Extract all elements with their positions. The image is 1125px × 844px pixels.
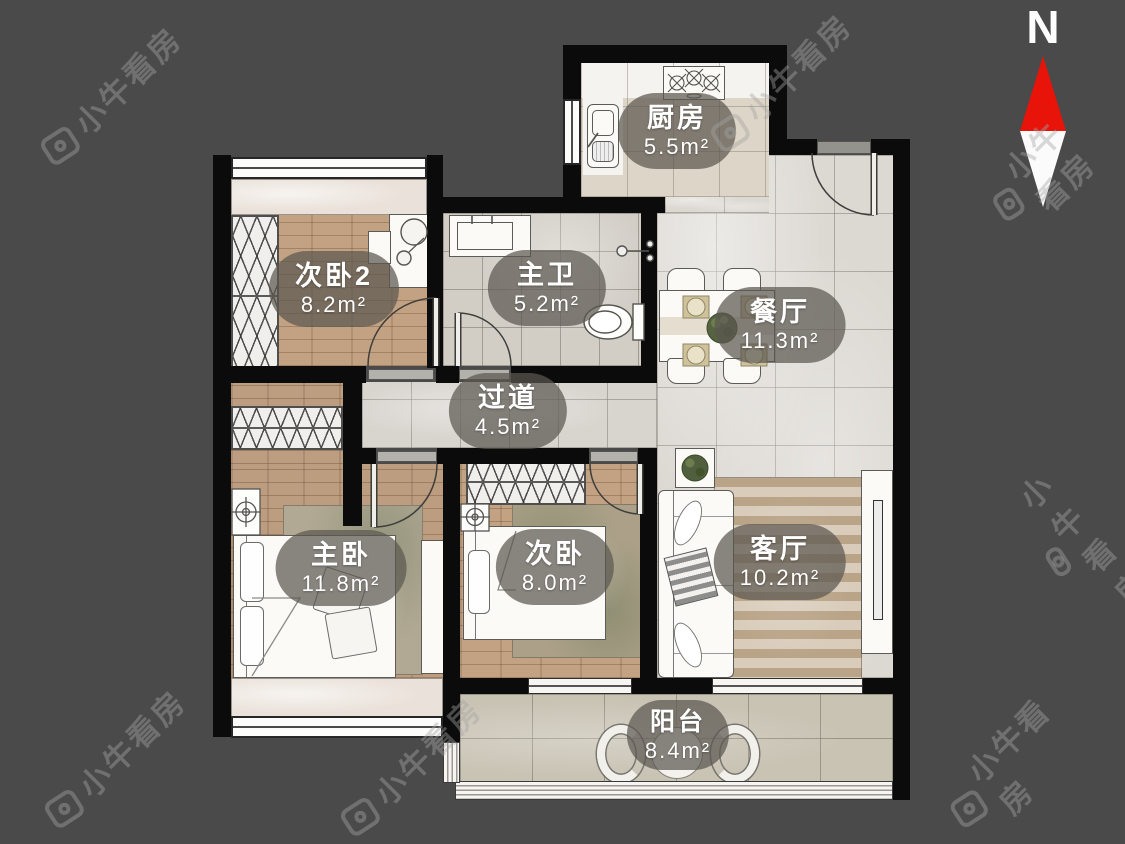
room-area: 8.2m²	[295, 292, 373, 318]
room-name: 阳台	[645, 706, 711, 738]
watermark: 小牛看房	[36, 678, 194, 836]
pillow	[240, 606, 264, 666]
door-threshold	[368, 369, 434, 380]
wall	[443, 464, 460, 678]
compass-north-label: N	[1017, 0, 1069, 54]
wall	[457, 678, 528, 694]
wall	[435, 197, 665, 213]
room-name: 餐厅	[741, 296, 820, 328]
watermark-text: 小牛看房	[955, 670, 1108, 823]
watermark-lens-icon	[52, 137, 69, 154]
room-area: 8.0m²	[522, 570, 588, 596]
bedroom2-window	[231, 157, 427, 179]
bedroom-wardrobe	[466, 459, 586, 505]
wall	[640, 456, 657, 678]
room-label-balcony: 阳台 8.4m²	[627, 700, 729, 770]
sofa-pillow	[668, 619, 708, 672]
watermark: 小牛看房	[926, 670, 1108, 844]
watermark-logo-icon	[1043, 544, 1074, 579]
room-area: 4.5m²	[475, 414, 541, 440]
compass-south-arrow-icon	[1020, 131, 1066, 207]
room-name: 次卧2	[295, 260, 373, 292]
watermark-lens-icon	[1050, 553, 1067, 570]
wall	[563, 45, 787, 63]
balcony-railing	[455, 781, 893, 800]
watermark-text: 小牛看房	[1007, 450, 1125, 613]
wall	[427, 213, 443, 368]
room-label-hallway: 过道 4.5m²	[449, 373, 567, 449]
bedroom2-window-sill	[231, 179, 427, 215]
master-window-sill	[231, 678, 443, 718]
room-label-dining: 餐厅 11.3m²	[715, 287, 846, 363]
tv	[873, 500, 883, 620]
wall	[436, 366, 459, 383]
wall	[427, 155, 443, 213]
bath-sink-basin	[457, 222, 513, 250]
floor-plan: 厨房 5.5m² 次卧2 8.2m² 主卫 5.2m² 餐厅 11.3m² 过道…	[0, 0, 1125, 844]
wall	[213, 155, 231, 737]
watermark-lens-icon	[1001, 196, 1018, 213]
room-area: 10.2m²	[740, 565, 820, 591]
room-area: 11.8m²	[302, 571, 381, 597]
watermark-lens-icon	[56, 800, 73, 817]
kitchen-window	[563, 99, 581, 165]
kitchen-drainer	[592, 141, 614, 162]
room-name: 次卧	[522, 538, 588, 570]
watermark-logo-icon	[42, 787, 87, 831]
room-name: 主卫	[514, 259, 580, 291]
room-name: 过道	[475, 382, 541, 414]
door-threshold	[377, 451, 437, 462]
master-wardrobe	[231, 406, 343, 450]
wall	[343, 448, 376, 464]
watermark-logo-icon	[948, 787, 991, 830]
room-area: 5.2m²	[514, 291, 580, 317]
room-label-bedroom2: 次卧2 8.2m²	[269, 251, 399, 327]
room-area: 5.5m²	[644, 134, 710, 160]
wall	[641, 213, 657, 383]
wall	[437, 448, 589, 464]
watermark-logo-icon	[338, 795, 383, 839]
room-name: 厨房	[644, 102, 710, 134]
watermark: 小牛看房	[988, 450, 1125, 632]
room-name: 主卧	[302, 539, 381, 571]
sofa-pillow	[668, 497, 708, 550]
balcony-sliding-door[interactable]	[712, 678, 863, 694]
wall	[343, 382, 362, 448]
room-label-kitchen: 厨房 5.5m²	[618, 93, 736, 169]
watermark-lens-icon	[961, 800, 978, 817]
watermark-text: 小牛看房	[62, 15, 190, 143]
throw-pillow	[324, 606, 377, 659]
kitchen-pass-floor	[665, 197, 769, 213]
room-label-bedroom: 次卧 8.0m²	[496, 529, 614, 605]
master-window	[231, 716, 443, 738]
compass: N	[1017, 0, 1069, 207]
plant-stand	[675, 448, 715, 488]
wall	[893, 139, 910, 800]
dining-chair	[667, 358, 705, 384]
compass-north-arrow-icon	[1020, 56, 1066, 131]
watermark-logo-icon	[38, 124, 83, 168]
wall	[563, 45, 581, 99]
room-label-master-bedroom: 主卧 11.8m²	[276, 530, 407, 606]
wall	[443, 678, 460, 742]
room-label-master-bath: 主卫 5.2m²	[488, 250, 606, 326]
kitchen-sink-basin	[592, 110, 614, 136]
wall	[632, 678, 712, 694]
wall	[213, 366, 366, 383]
balcony-railing-left	[443, 742, 460, 783]
room-label-living: 客厅 10.2m²	[714, 524, 846, 600]
wall	[343, 464, 362, 526]
watermark-text: 小牛看房	[66, 678, 194, 806]
watermark-lens-icon	[352, 808, 369, 825]
room-area: 11.3m²	[741, 328, 820, 354]
entrance-threshold	[817, 141, 871, 154]
door-threshold	[590, 451, 638, 462]
bedroom-balcony-window	[528, 678, 632, 694]
wall	[769, 139, 817, 155]
room-area: 8.4m²	[645, 738, 711, 764]
pillow	[468, 550, 490, 614]
room-name: 客厅	[740, 533, 820, 565]
wall	[863, 678, 893, 694]
watermark: 小牛看房	[32, 15, 190, 173]
pillow	[240, 542, 264, 602]
